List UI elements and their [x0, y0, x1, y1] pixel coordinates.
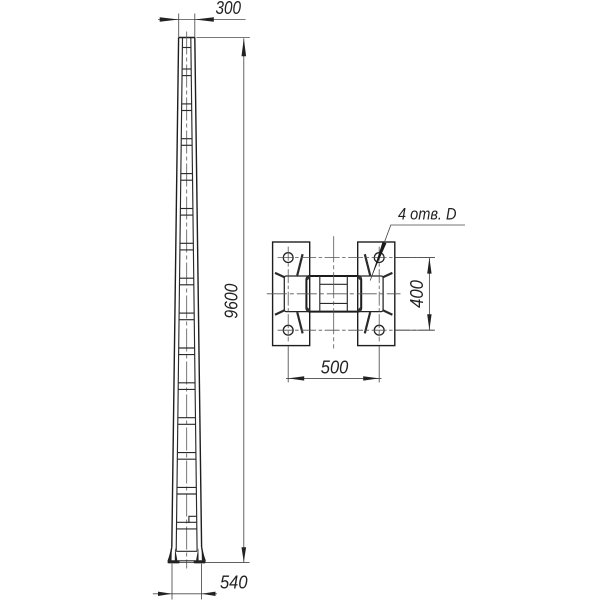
svg-text:4 отв. D: 4 отв. D [398, 204, 457, 223]
svg-text:300: 300 [216, 0, 242, 18]
svg-text:400: 400 [407, 280, 427, 308]
svg-text:540: 540 [220, 573, 248, 593]
svg-text:9600: 9600 [221, 284, 241, 319]
svg-text:500: 500 [321, 357, 349, 377]
